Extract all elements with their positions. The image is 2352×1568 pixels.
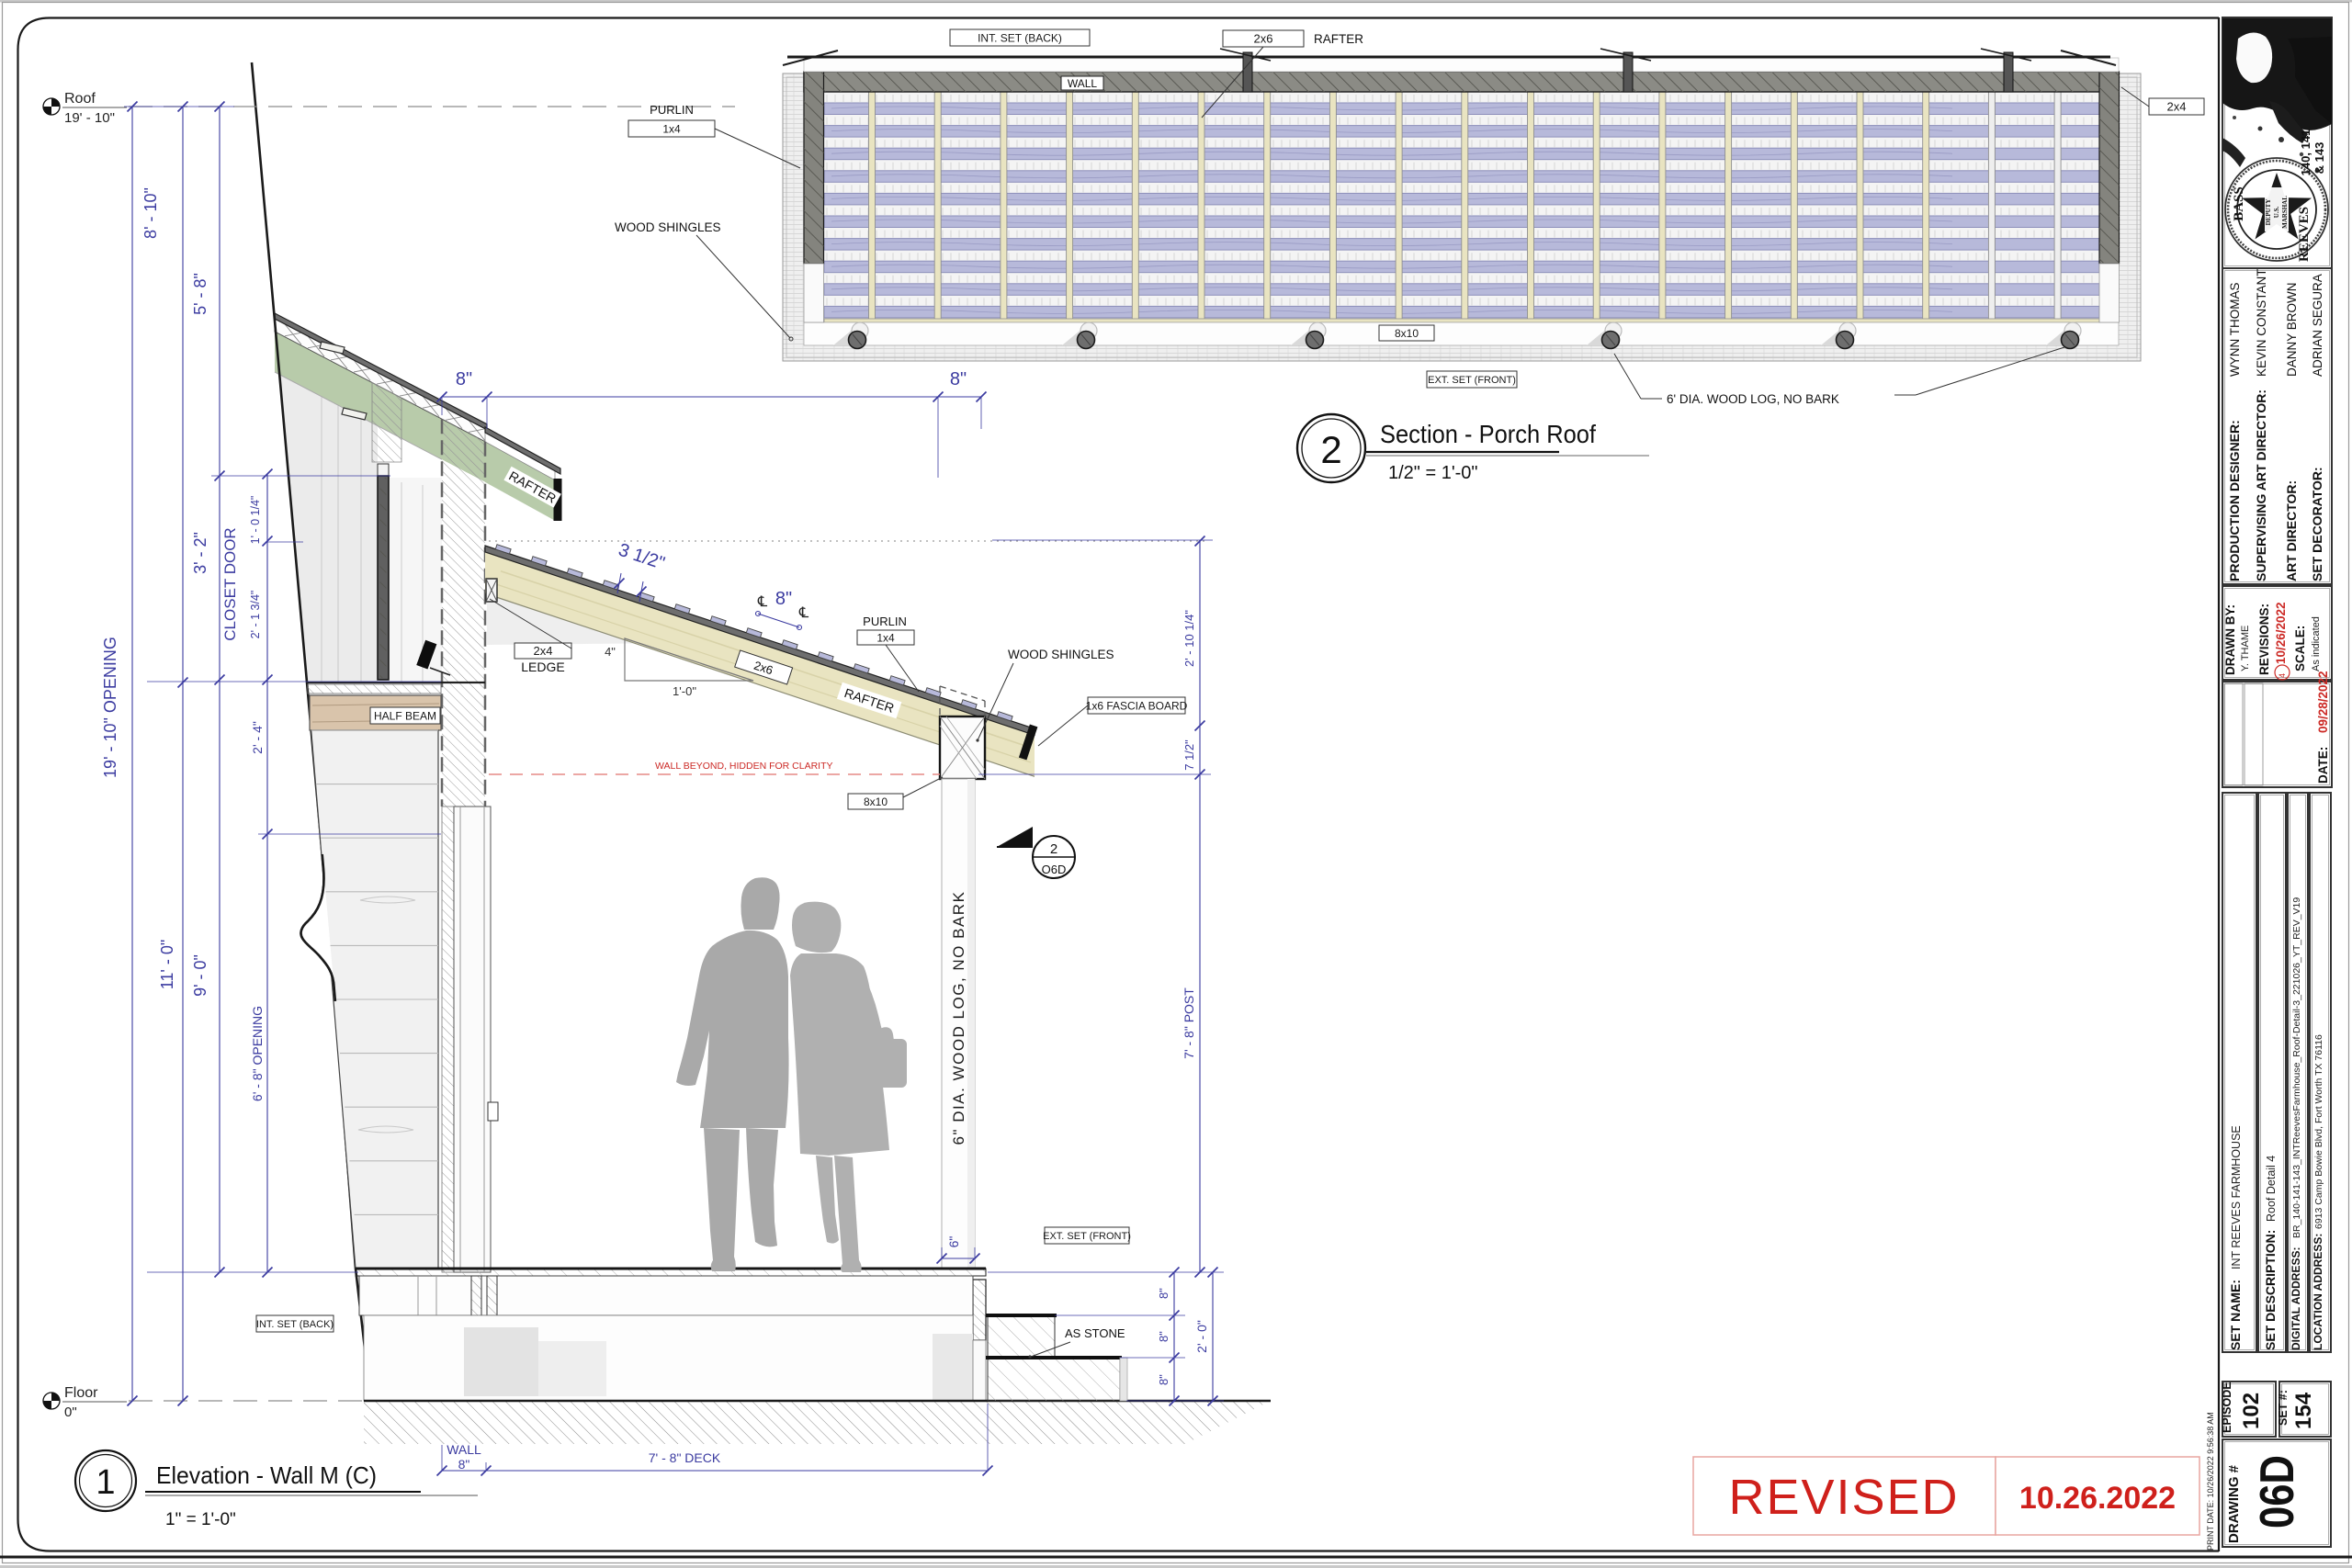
svg-text:2: 2 [1320,428,1341,471]
svg-text:WOOD SHINGLES: WOOD SHINGLES [1008,648,1114,661]
svg-text:8": 8" [1157,1374,1170,1385]
svg-text:10/26/2022: 10/26/2022 [2274,602,2288,664]
svg-text:8x10: 8x10 [864,795,888,808]
svg-text:1x4: 1x4 [662,122,681,135]
svg-text:2' - 10 1/4": 2' - 10 1/4" [1182,610,1196,667]
svg-text:7 1/2": 7 1/2" [1182,739,1196,771]
svg-text:2: 2 [1050,841,1057,857]
svg-text:6" DIA. WOOD LOG, NO BARK: 6" DIA. WOOD LOG, NO BARK [950,891,967,1145]
svg-text:CLOSET DOOR: CLOSET DOOR [221,527,239,640]
svg-text:DANNY BROWN: DANNY BROWN [2285,282,2299,377]
svg-text:INT. SET (BACK): INT. SET (BACK) [256,1319,334,1330]
svg-text:BASS: BASS [2232,186,2246,221]
svg-text:10.26.2022: 10.26.2022 [2019,1481,2176,1516]
svg-text:DRAWING #: DRAWING # [2226,1464,2242,1543]
svg-text:8": 8" [458,1457,470,1472]
svg-text:& 143: & 143 [2312,142,2326,175]
svg-text:REVISIONS:: REVISIONS: [2257,604,2271,675]
svg-text:7' - 8" POST: 7' - 8" POST [1182,987,1196,1059]
svg-text:WALL BEYOND, HIDDEN FOR CLARIT: WALL BEYOND, HIDDEN FOR CLARITY [655,761,833,772]
svg-text:U.S.: U.S. [2273,207,2280,219]
svg-text:PRINT DATE: 10/26/2022 9:56:: PRINT DATE: 10/26/2022 9:56:38 AM [2206,1412,2215,1551]
svg-text:EPISODE: EPISODE [2221,1382,2233,1433]
svg-text:BR_140-141-143_INTReevesFarmho: BR_140-141-143_INTReevesFarmhouse_Roof-D… [2291,897,2302,1238]
svg-text:AS STONE: AS STONE [1065,1326,1125,1340]
svg-text:SET DESCRIPTION:: SET DESCRIPTION: [2263,1230,2278,1350]
svg-text:DRAWN BY:: DRAWN BY: [2223,604,2237,675]
svg-text:DEPUTY: DEPUTY [2265,199,2272,226]
svg-text:HALF BEAM: HALF BEAM [374,709,436,722]
svg-text:DIGITAL ADDRESS:: DIGITAL ADDRESS: [2290,1247,2302,1350]
svg-text:INT REEVES FARMHOUSE: INT REEVES FARMHOUSE [2230,1125,2243,1269]
svg-text:1" = 1'-0": 1" = 1'-0" [165,1510,236,1529]
svg-text:Roof Detail 4: Roof Detail 4 [2265,1156,2278,1222]
svg-text:5' - 8": 5' - 8" [191,273,209,315]
svg-text:PRODUCTION DESIGNER:: PRODUCTION DESIGNER: [2227,420,2242,581]
svg-text:7' - 8" DECK: 7' - 8" DECK [649,1450,721,1465]
svg-text:19' - 10" OPENING: 19' - 10" OPENING [101,637,119,778]
svg-text:8": 8" [950,369,967,389]
svg-text:REEVES: REEVES [2297,207,2312,262]
svg-text:Section - Porch Roof: Section - Porch Roof [1380,420,1596,448]
svg-text:ART DIRECTOR:: ART DIRECTOR: [2284,480,2299,581]
svg-text:EXT. SET (FRONT): EXT. SET (FRONT) [1043,1231,1131,1242]
svg-text:WALL: WALL [1068,77,1098,90]
svg-text:2' - 0": 2' - 0" [1194,1320,1209,1353]
svg-text:Y. THAME: Y. THAME [2240,626,2251,671]
svg-text:2' - 1 3/4": 2' - 1 3/4" [249,591,262,639]
svg-text:06D: 06D [2251,1455,2304,1529]
svg-text:DATE:: DATE: [2316,747,2330,784]
svg-text:6' DIA. WOOD LOG, NO BARK: 6' DIA. WOOD LOG, NO BARK [1667,392,1839,406]
svg-text:SUPERVISING ART DIRECTOR:: SUPERVISING ART DIRECTOR: [2254,389,2268,581]
svg-text:8' - 10": 8' - 10" [141,187,160,239]
svg-text:LEDGE: LEDGE [521,660,564,674]
svg-text:ADRIAN SEGURA: ADRIAN SEGURA [2311,274,2324,377]
svg-text:6913 Camp Bowie Blvd, Fort Wor: 6913 Camp Bowie Blvd, Fort Worth TX 7611… [2313,1034,2324,1229]
svg-text:Elevation - Wall M (C): Elevation - Wall M (C) [156,1461,377,1489]
svg-text:REVISED: REVISED [1728,1470,1959,1525]
svg-text:8": 8" [456,369,472,389]
svg-text:8x10: 8x10 [1395,327,1419,340]
svg-text:1/2" = 1'-0": 1/2" = 1'-0" [1388,463,1478,483]
svg-text:1' - 0 1/4": 1' - 0 1/4" [249,496,262,545]
svg-text:Floor: Floor [64,1385,98,1401]
svg-text:4: 4 [2278,673,2287,678]
svg-text:PURLIN: PURLIN [863,615,907,628]
svg-text:RAFTER: RAFTER [1314,32,1363,46]
svg-text:SCALE:: SCALE: [2293,626,2307,671]
svg-text:19' - 10": 19' - 10" [64,110,115,126]
svg-text:102: 102 [2239,1393,2264,1429]
svg-text:8": 8" [775,589,792,609]
svg-text:2x4: 2x4 [2167,100,2187,114]
svg-text:1x4: 1x4 [876,631,895,644]
svg-text:WALL: WALL [447,1442,481,1457]
svg-text:INT. SET (BACK): INT. SET (BACK) [978,31,1062,44]
svg-text:SET NAME:: SET NAME: [2228,1280,2243,1350]
svg-text:As indicated: As indicated [2311,616,2322,671]
svg-text:1x6 FASCIA BOARD: 1x6 FASCIA BOARD [1086,699,1188,712]
svg-text:2x4: 2x4 [534,644,553,658]
svg-text:9' - 0": 9' - 0" [191,954,209,997]
svg-text:WYNN THOMAS: WYNN THOMAS [2228,282,2242,377]
svg-text:1: 1 [96,1463,115,1502]
svg-text:6": 6" [946,1236,961,1248]
svg-text:4": 4" [605,645,616,659]
svg-text:℄: ℄ [757,594,768,610]
svg-text:LOCATION ADDRESS:: LOCATION ADDRESS: [2312,1234,2324,1350]
svg-text:3' - 2": 3' - 2" [191,532,209,574]
svg-text:MARSHAL: MARSHAL [2281,196,2289,229]
svg-text:0": 0" [64,1404,77,1420]
svg-text:EXT. SET (FRONT): EXT. SET (FRONT) [1428,375,1516,386]
svg-text:8": 8" [1157,1331,1170,1342]
svg-text:PURLIN: PURLIN [650,103,694,117]
svg-text:11' - 0": 11' - 0" [158,940,176,990]
svg-text:2' - 4": 2' - 4" [250,721,265,754]
svg-text:KEVIN CONSTANT: KEVIN CONSTANT [2255,268,2268,377]
svg-text:Roof: Roof [64,91,96,107]
svg-text:140, 141: 140, 141 [2299,130,2312,176]
svg-text:℄: ℄ [798,605,809,621]
svg-text:6' - 8" OPENING: 6' - 8" OPENING [250,1006,265,1101]
svg-text:O6D: O6D [1042,863,1067,876]
svg-text:09/28/2022: 09/28/2022 [2316,671,2330,733]
svg-text:1'-0": 1'-0" [673,684,696,698]
svg-text:SET #:: SET #: [2277,1390,2290,1426]
svg-text:154: 154 [2291,1392,2316,1429]
svg-text:8": 8" [1157,1288,1170,1299]
svg-text:SET DECORATOR:: SET DECORATOR: [2310,467,2324,581]
svg-text:2x6: 2x6 [1254,32,1273,46]
svg-text:WOOD SHINGLES: WOOD SHINGLES [615,220,721,234]
